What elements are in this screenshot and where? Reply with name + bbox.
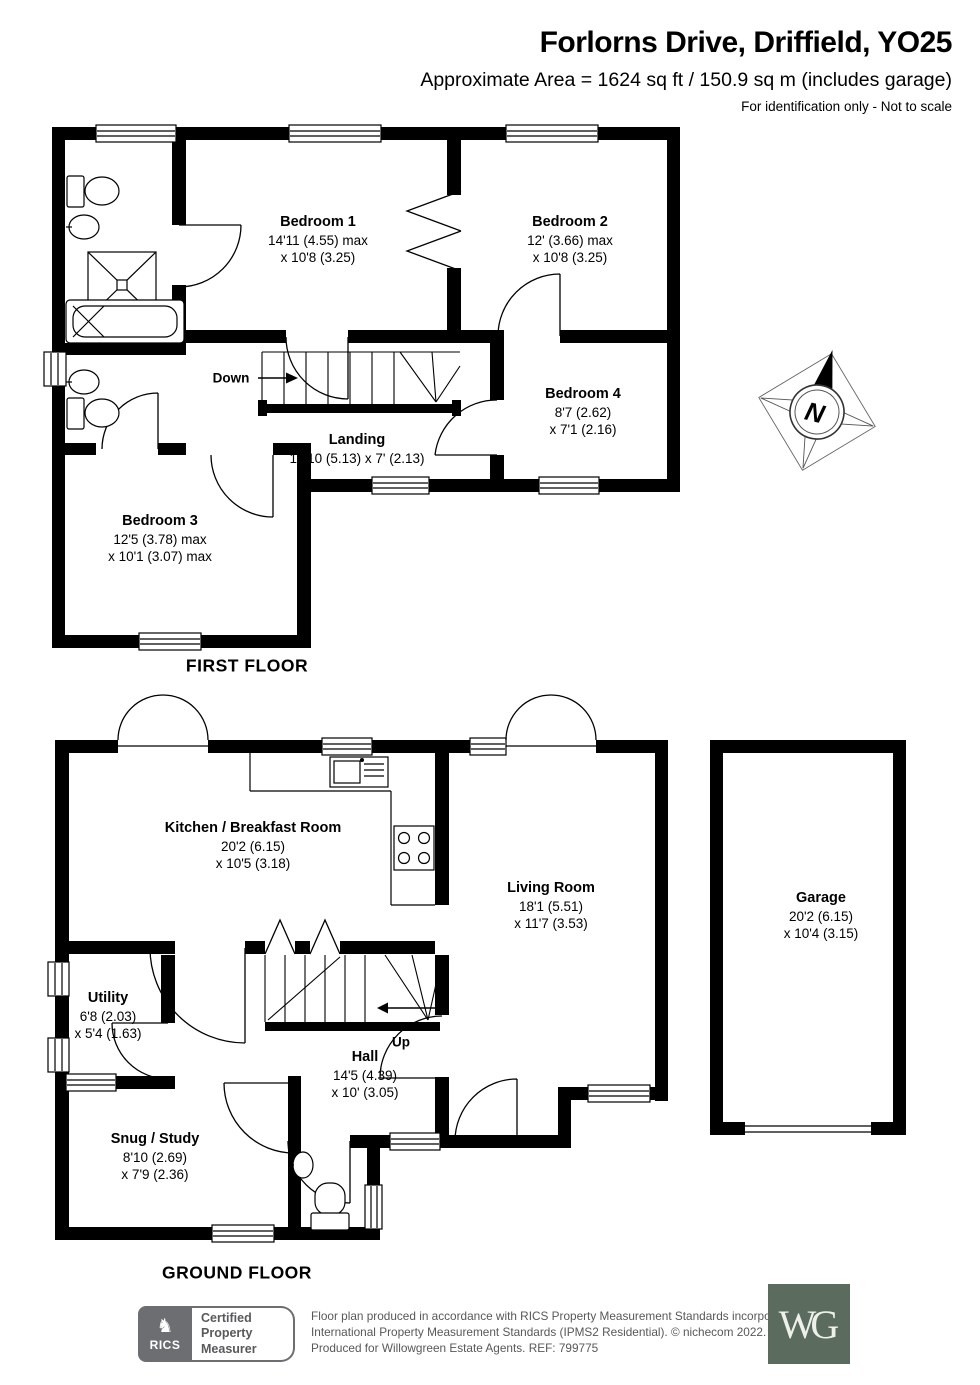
room-dims: 8'10 (2.69) [111, 1149, 200, 1167]
room-label-garage: Garage 20'2 (6.15) x 10'4 (3.15) [784, 889, 859, 943]
page-title: Forlorns Drive, Driffield, YO25 [420, 26, 952, 60]
area-line: Approximate Area = 1624 sq ft / 150.9 sq… [420, 69, 952, 92]
room-label-living-room: Living Room 18'1 (5.51) x 11'7 (3.53) [507, 879, 595, 933]
room-dims: x 10'8 (3.25) [268, 249, 368, 267]
stairs-down-label: Down [213, 371, 250, 386]
willowgreen-logo: WG [768, 1284, 850, 1364]
wardrobe-doors-icon [407, 191, 461, 271]
room-name: Hall [331, 1048, 398, 1067]
room-label-bedroom-3: Bedroom 3 12'5 (3.78) max x 10'1 (3.07) … [108, 512, 212, 566]
rics-logo: ♞ RICS [138, 1306, 192, 1362]
toilet-icon [67, 398, 119, 429]
kitchen-sink-icon [330, 757, 388, 787]
sink-icon [66, 215, 99, 239]
first-floor-windows [44, 125, 599, 650]
room-dims: 12'5 (3.78) max [108, 531, 212, 549]
room-dims: x 11'7 (3.53) [507, 915, 595, 933]
garage-door [745, 1126, 871, 1132]
room-name: Bedroom 4 [545, 385, 621, 404]
room-dims: 6'8 (2.03) [74, 1008, 141, 1026]
room-name: Garage [784, 889, 859, 908]
scale-disclaimer: For identification only - Not to scale [420, 99, 952, 114]
certified-property-measurer-badge: Certified Property Measurer [192, 1306, 295, 1362]
stairs-up [265, 955, 442, 1031]
room-name: Bedroom 1 [268, 213, 368, 232]
up-arrow-icon [377, 1003, 442, 1014]
rics-label: RICS [150, 1338, 181, 1352]
bathroom-fixtures [66, 176, 184, 429]
down-arrow-icon [258, 373, 298, 384]
room-name: Landing [290, 431, 425, 450]
room-dims: 14'5 (4.39) [331, 1067, 398, 1085]
room-name: Snug / Study [111, 1130, 200, 1149]
room-label-landing: Landing 16'10 (5.13) x 7' (2.13) [290, 431, 425, 467]
disclaimer-line: Floor plan produced in accordance with R… [311, 1309, 800, 1325]
badge-line: Property [201, 1326, 293, 1342]
hob-icon [394, 826, 434, 870]
room-dims: 12' (3.66) max [527, 232, 613, 250]
toilet-icon [311, 1183, 349, 1230]
room-label-kitchen: Kitchen / Breakfast Room 20'2 (6.15) x 1… [165, 819, 341, 873]
room-label-bedroom-1: Bedroom 1 14'11 (4.55) max x 10'8 (3.25) [268, 213, 368, 267]
room-label-bedroom-2: Bedroom 2 12' (3.66) max x 10'8 (3.25) [527, 213, 613, 267]
first-floor-title: FIRST FLOOR [186, 656, 308, 677]
disclaimer-line: International Property Measurement Stand… [311, 1325, 800, 1341]
stairs-down [258, 352, 461, 416]
room-dims: x 10'1 (3.07) max [108, 548, 212, 566]
room-dims: x 10'4 (3.15) [784, 925, 859, 943]
room-dims: 14'11 (4.55) max [268, 232, 368, 250]
room-label-bedroom-4: Bedroom 4 8'7 (2.62) x 7'1 (2.16) [545, 385, 621, 439]
room-dims: x 7'1 (2.16) [545, 421, 621, 439]
stairs-up-label: Up [392, 1035, 410, 1050]
room-label-snug-study: Snug / Study 8'10 (2.69) x 7'9 (2.36) [111, 1130, 200, 1184]
sink-icon [66, 370, 99, 394]
floorplan-page: N Forlorns Drive, Driffield, YO25 Approx… [0, 0, 980, 1385]
room-dims: x 5'4 (1.63) [74, 1025, 141, 1043]
header: Forlorns Drive, Driffield, YO25 Approxim… [420, 26, 952, 114]
rics-lion-icon: ♞ [156, 1317, 173, 1336]
footer: ♞ RICS Certified Property Measurer Floor… [138, 1306, 800, 1362]
badge-line: Certified [201, 1311, 293, 1327]
compass-icon: N [744, 335, 890, 484]
ground-floor-title: GROUND FLOOR [162, 1263, 312, 1284]
room-dims: 16'10 (5.13) x 7' (2.13) [290, 450, 425, 468]
room-dims: 18'1 (5.51) [507, 898, 595, 916]
footer-disclaimer: Floor plan produced in accordance with R… [311, 1306, 800, 1357]
room-name: Bedroom 2 [527, 213, 613, 232]
room-name: Bedroom 3 [108, 512, 212, 531]
room-dims: x 10'5 (3.18) [165, 855, 341, 873]
badge-line: Measurer [201, 1342, 293, 1358]
room-dims: 20'2 (6.15) [165, 838, 341, 856]
room-name: Utility [74, 989, 141, 1008]
room-dims: x 10' (3.05) [331, 1084, 398, 1102]
room-dims: x 10'8 (3.25) [527, 249, 613, 267]
bathtub-icon [66, 300, 184, 343]
room-dims: x 7'9 (2.36) [111, 1166, 200, 1184]
disclaimer-line: Produced for Willowgreen Estate Agents. … [311, 1341, 800, 1357]
room-dims: 20'2 (6.15) [784, 908, 859, 926]
room-name: Living Room [507, 879, 595, 898]
room-name: Kitchen / Breakfast Room [165, 819, 341, 838]
toilet-icon [67, 176, 119, 207]
room-dims: 8'7 (2.62) [545, 404, 621, 422]
room-label-utility: Utility 6'8 (2.03) x 5'4 (1.63) [74, 989, 141, 1043]
room-label-hall: Hall 14'5 (4.39) x 10' (3.05) [331, 1048, 398, 1102]
